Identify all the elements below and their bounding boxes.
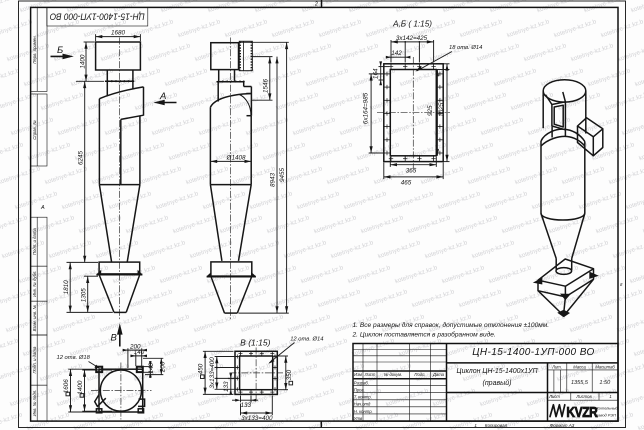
svg-text:365: 365 (406, 167, 417, 174)
svg-text:8943: 8943 (270, 173, 277, 188)
svg-text:6245: 6245 (78, 151, 85, 166)
svg-text:1680: 1680 (111, 30, 126, 37)
svg-text:Лит.: Лит. (551, 364, 562, 369)
svg-text:1305: 1305 (80, 288, 87, 303)
svg-text:Подп. и дата: Подп. и дата (32, 346, 37, 374)
svg-text:Формат А3: Формат А3 (550, 423, 575, 428)
svg-text:1400: 1400 (77, 380, 84, 395)
svg-text:2. Циклон поставляется в разоб: 2. Циклон поставляется в разобранном вид… (352, 330, 496, 338)
svg-text:Лист: Лист (548, 394, 560, 399)
svg-text:925: 925 (427, 105, 434, 116)
svg-text:465: 465 (401, 179, 412, 186)
svg-text:Циклон ЦН-15-1400х1УП: Циклон ЦН-15-1400х1УП (456, 368, 538, 375)
svg-text:3х133=400: 3х133=400 (241, 415, 273, 422)
svg-text:1: 1 (609, 394, 611, 399)
svg-text:В: В (111, 333, 118, 344)
svg-text:3х133=400: 3х133=400 (209, 357, 216, 389)
svg-text:1810: 1810 (63, 280, 70, 295)
svg-text:140: 140 (134, 349, 145, 356)
svg-text:Н. контр.: Н. контр. (354, 409, 373, 414)
svg-text:1. Все размеры для справок, до: 1. Все размеры для справок, допустимые о… (353, 321, 550, 329)
svg-text:200: 200 (159, 361, 166, 373)
svg-text:Взам. инв. №: Взам. инв. № (32, 304, 37, 331)
svg-text:Листов: Листов (575, 394, 592, 399)
svg-text:Масса: Масса (573, 364, 586, 369)
svg-text:3х142=425: 3х142=425 (396, 35, 428, 42)
svg-text:Подп.: Подп. (414, 372, 425, 377)
svg-text:Т. контр.: Т. контр. (354, 395, 372, 400)
svg-text:1025: 1025 (438, 102, 445, 117)
svg-text:450: 450 (197, 363, 204, 374)
svg-text:Дата: Дата (432, 372, 445, 377)
svg-text:133: 133 (240, 402, 251, 409)
svg-text:А,Б ( 1:15): А,Б ( 1:15) (392, 20, 432, 29)
svg-text:В (1:15): В (1:15) (240, 337, 270, 347)
svg-text:9455: 9455 (279, 168, 286, 183)
svg-text:1546: 1546 (262, 79, 269, 94)
svg-text:Б: Б (57, 45, 63, 56)
svg-text:завод РЭП: завод РЭП (596, 413, 617, 418)
svg-text:1400: 1400 (79, 54, 86, 69)
svg-text:Лист: Лист (364, 372, 376, 377)
svg-text:12 отв. Ø18: 12 отв. Ø18 (57, 355, 91, 361)
svg-text:Масштаб: Масштаб (595, 364, 615, 369)
svg-text:1606: 1606 (63, 379, 70, 394)
svg-text:Пров.: Пров. (354, 388, 365, 393)
svg-text:133: 133 (223, 381, 230, 392)
svg-text:№ докум.: № докум. (384, 372, 402, 377)
svg-text:1355,5: 1355,5 (571, 380, 589, 386)
svg-text:18 отв. Ø14: 18 отв. Ø14 (449, 45, 482, 51)
svg-text:Инв. № дубл.: Инв. № дубл. (32, 270, 37, 296)
svg-text:1:50: 1:50 (599, 380, 611, 386)
svg-text:Утв: Утв (354, 416, 363, 421)
svg-text:6х164=985: 6х164=985 (363, 92, 370, 124)
svg-text:ЦН-15-1400-1УП-000 ВО: ЦН-15-1400-1УП-000 ВО (472, 347, 594, 358)
svg-text:KVZR: KVZR (566, 404, 598, 421)
svg-text:Подп. и дата: Подп. и дата (32, 228, 37, 256)
svg-text:Справ. №: Справ. № (32, 120, 37, 140)
svg-text:Инв. № подл.: Инв. № подл. (32, 390, 37, 417)
svg-text:Разраб.: Разраб. (354, 381, 369, 386)
svg-text:Перв. примен.: Перв. примен. (32, 35, 37, 64)
svg-text:А: А (40, 205, 45, 211)
svg-text:350: 350 (286, 369, 293, 380)
svg-text:140: 140 (148, 362, 155, 373)
svg-text:(правый): (правый) (483, 379, 512, 387)
svg-text:Ø1408: Ø1408 (226, 155, 246, 162)
svg-text:Копировал: Копировал (485, 423, 508, 428)
svg-text:142: 142 (391, 50, 402, 57)
svg-text:Котельный: Котельный (597, 406, 619, 411)
svg-text:Изм: Изм (354, 372, 362, 377)
svg-text:2: 2 (314, 2, 318, 8)
svg-text:ЦН-15-1400-1УП-000 ВО: ЦН-15-1400-1УП-000 ВО (49, 10, 145, 21)
svg-text:12 отв. Ø14: 12 отв. Ø14 (290, 336, 323, 342)
svg-text:Нач.отд: Нач.отд (354, 402, 371, 407)
